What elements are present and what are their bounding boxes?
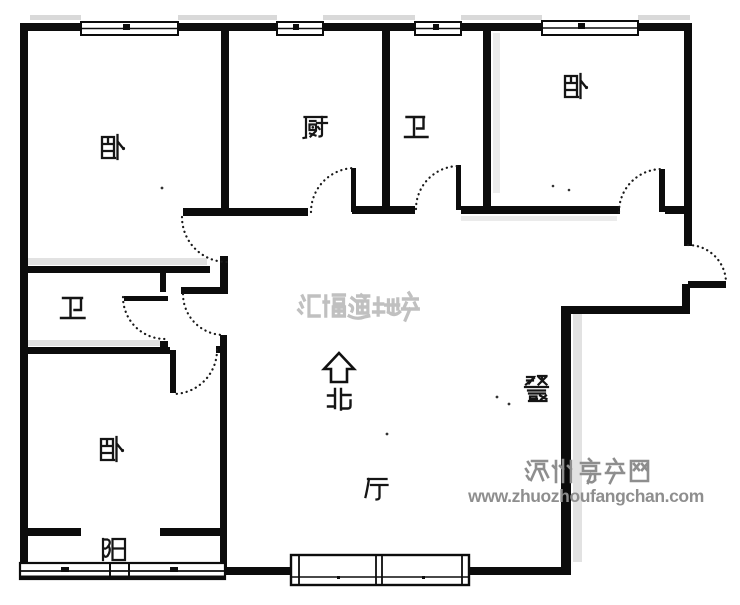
svg-text:www.zhuozhoufangchan.com: www.zhuozhoufangchan.com [467, 486, 704, 506]
